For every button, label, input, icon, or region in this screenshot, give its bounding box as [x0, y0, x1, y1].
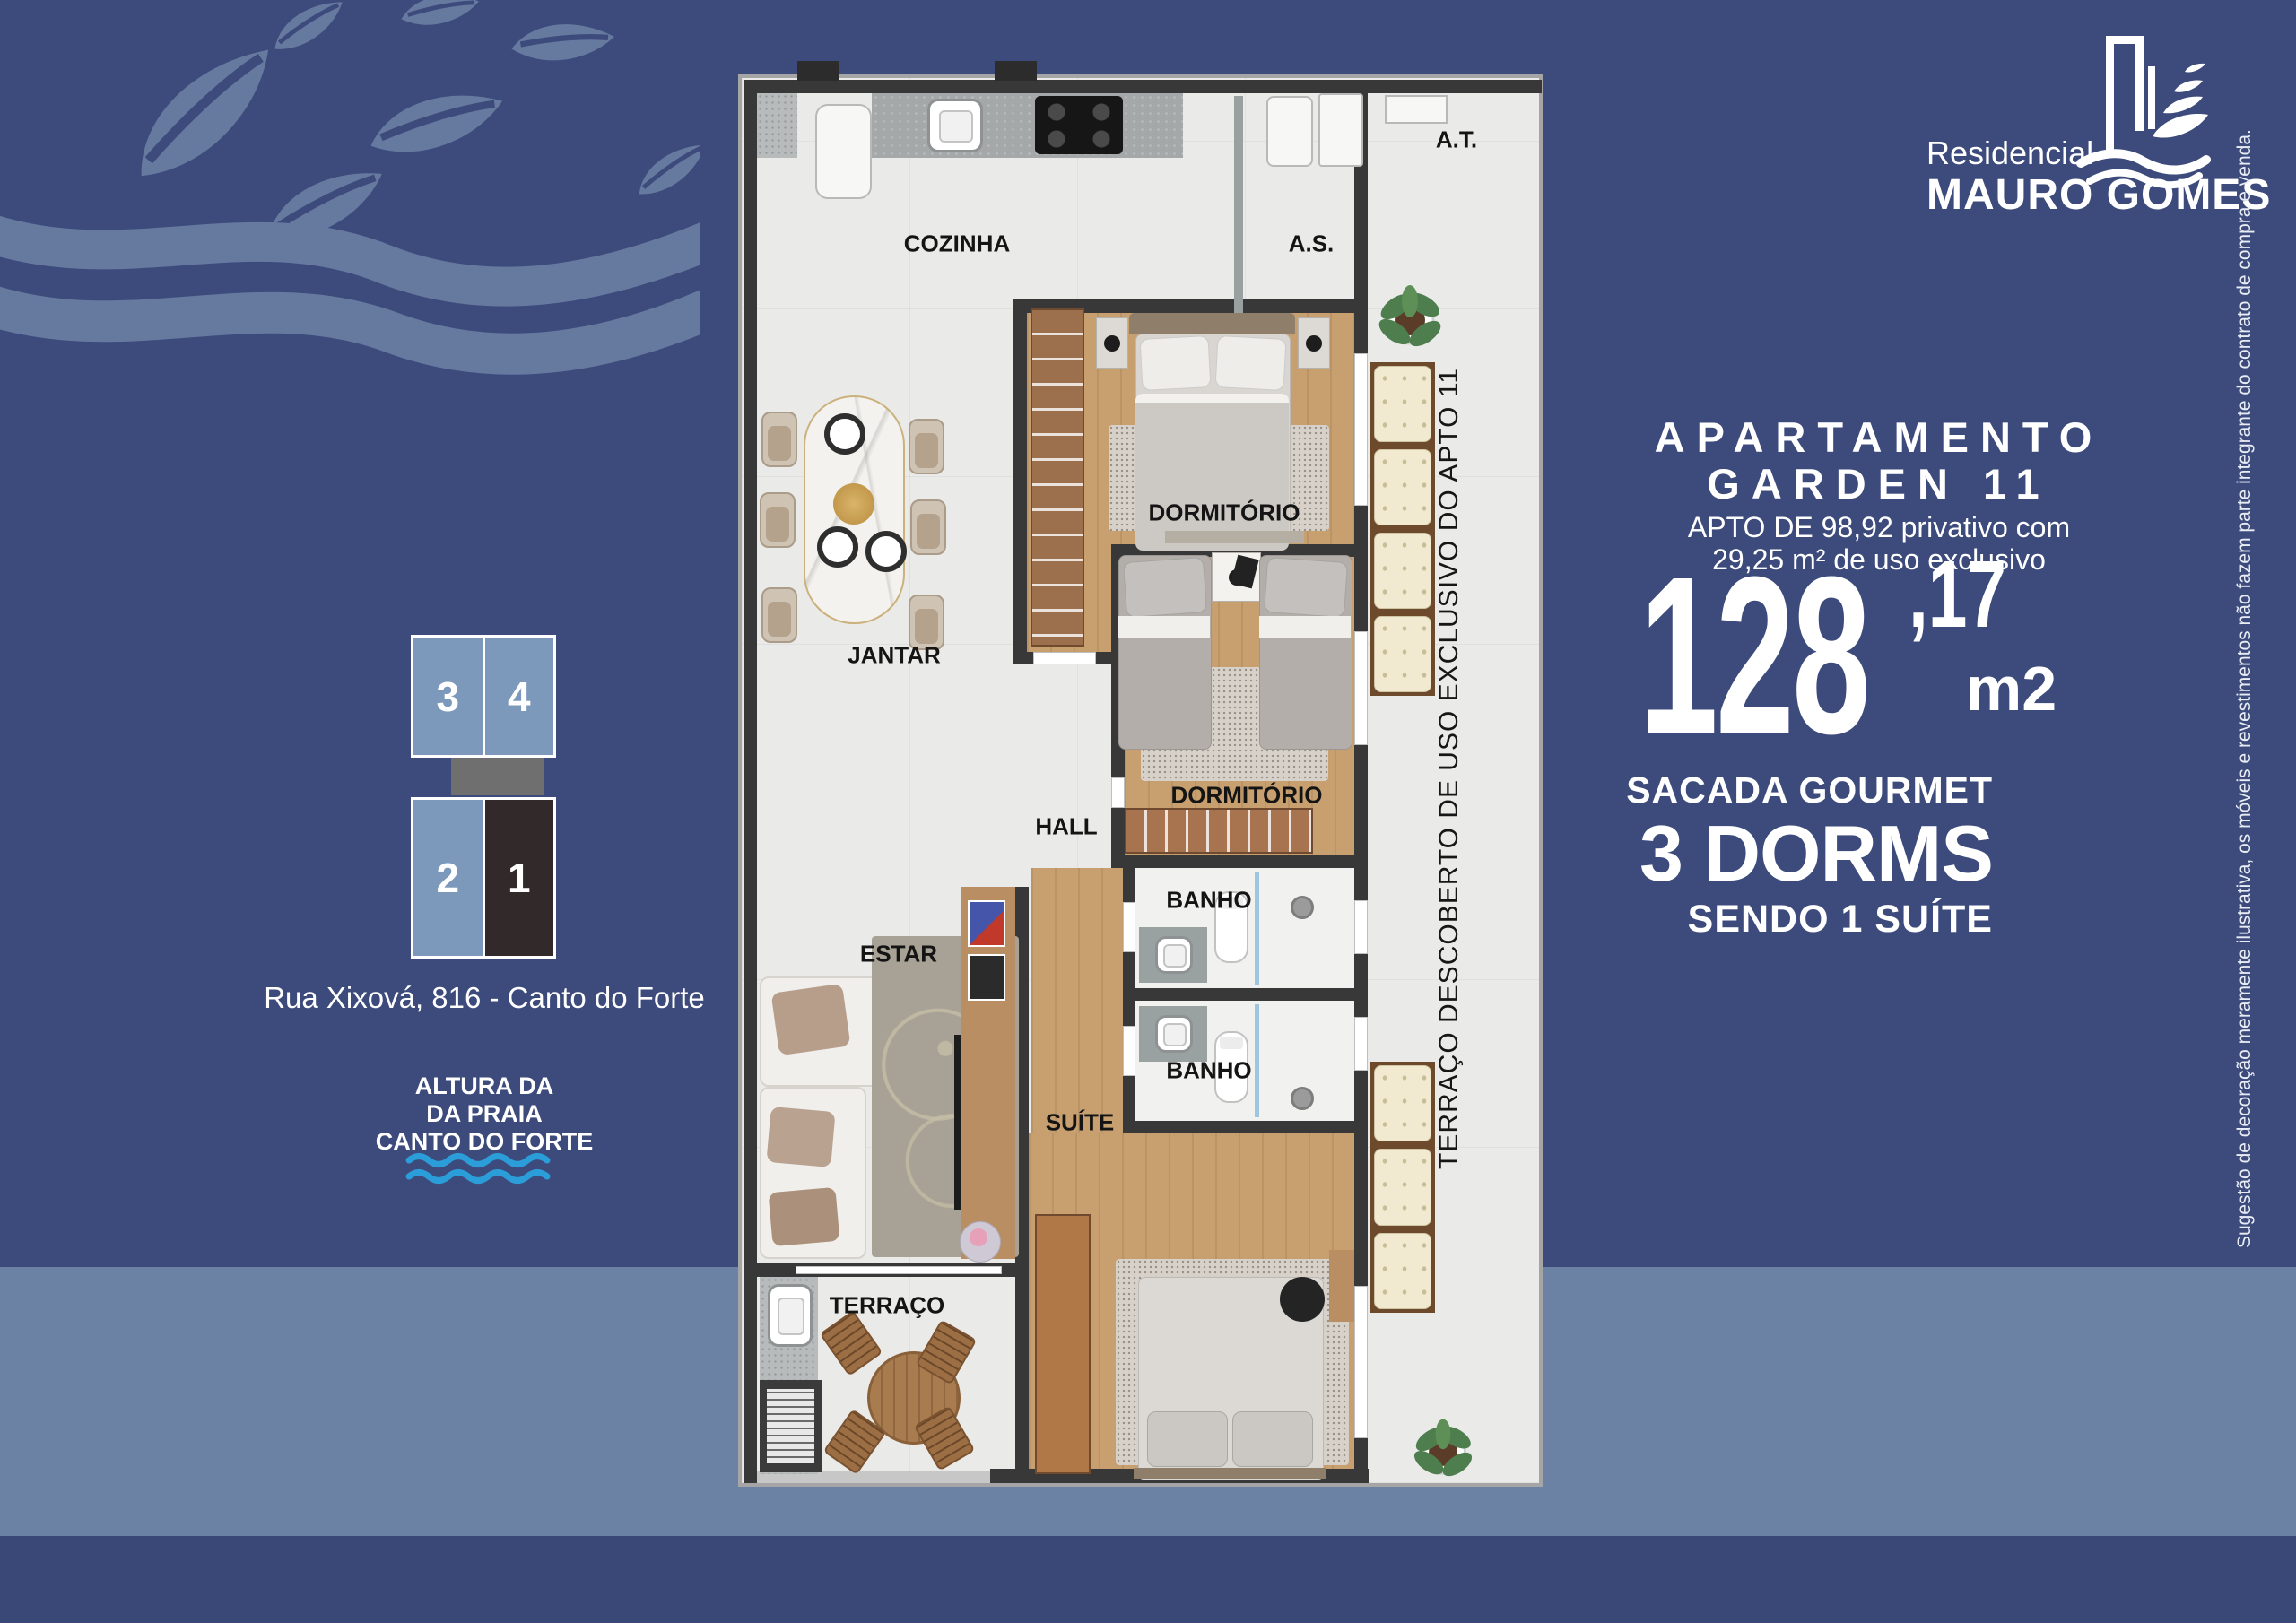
dining-chair-1 — [761, 412, 797, 467]
area-decimal: ,17 — [1909, 554, 2006, 635]
apartment-title-line2: GARDEN 11 — [1605, 461, 2152, 508]
side-table-dessert — [970, 1228, 987, 1246]
unit-3: 3 — [413, 638, 483, 755]
bench-cushion — [1374, 366, 1431, 442]
brochure-page: { "brand": { "prefix": "Residencial", "n… — [0, 0, 2296, 1623]
door-bedroom2 — [1111, 777, 1125, 808]
bench-cushion — [1374, 1233, 1431, 1309]
bedroom2-pillow-right — [1264, 557, 1348, 618]
feature-sacada-gourmet: SACADA GOURMET — [1578, 769, 1993, 811]
bedroom1-nightstand-left — [1096, 317, 1128, 369]
wall-bedroom2-left-b — [1111, 808, 1125, 868]
area-unit: m2 — [1966, 653, 2057, 725]
door-bedroom1 — [1033, 652, 1096, 664]
suite-pillow-right — [1232, 1411, 1313, 1467]
sliding-door-estar — [796, 1266, 1002, 1274]
dining-centerpiece — [833, 483, 874, 525]
label-dormitorio-1: DORMITÓRIO — [1149, 499, 1300, 527]
landmark-text: ALTURA DA DA PRAIA CANTO DO FORTE — [305, 1072, 664, 1156]
brand-name: MAURO GOMES — [1926, 170, 2271, 220]
water-heater — [1318, 93, 1363, 167]
sofa-pillow-1 — [771, 984, 851, 1055]
refrigerator — [815, 104, 872, 199]
bench-cushion — [1374, 1149, 1431, 1225]
terrace-chair-nw — [820, 1310, 883, 1376]
bench-cushion — [1374, 533, 1431, 609]
bathroom2-shower-glass — [1255, 1004, 1259, 1117]
leaf-wave-watermark — [0, 0, 700, 421]
bathroom1-shower-glass — [1255, 872, 1259, 985]
wall-between-bathrooms — [1135, 988, 1354, 1001]
wall-stub-2 — [995, 61, 1037, 81]
wall-left — [744, 80, 757, 1483]
bedroom2-wardrobe — [1125, 808, 1313, 854]
bedroom1-headboard — [1129, 313, 1295, 334]
footer-band — [0, 1536, 2296, 1623]
feature-suite: SENDO 1 SUÍTE — [1578, 897, 1993, 942]
bathroom2-sink — [1155, 1015, 1193, 1053]
tv-panel — [954, 1035, 961, 1210]
label-cozinha: COZINHA — [904, 230, 1010, 258]
legal-disclaimer: Sugestão de decoração meramente ilustrat… — [2234, 199, 2259, 1248]
bedroom1-wardrobe — [1031, 308, 1084, 647]
window-bedroom1 — [1354, 353, 1368, 506]
suite-desk — [1329, 1250, 1354, 1322]
brand-prefix: Residencial — [1926, 135, 2093, 172]
bathroom2-shower-head — [1291, 1087, 1314, 1110]
area-value: 128 — [1639, 563, 1868, 747]
beach-waves-icon — [405, 1151, 567, 1187]
bedroom1-nightstand-right — [1298, 317, 1330, 369]
suite-pillow-left — [1147, 1411, 1228, 1467]
console-art-print — [968, 954, 1005, 1001]
terrace-bench-top — [1370, 362, 1435, 696]
terrace-sink — [768, 1284, 813, 1347]
sofa-pillow-3 — [769, 1187, 840, 1246]
label-dormitorio-2: DORMITÓRIO — [1171, 782, 1323, 810]
unit-2: 2 — [413, 800, 483, 956]
washing-machine — [1266, 96, 1313, 167]
feature-dorms: 3 DORMS — [1578, 811, 1993, 897]
bathroom1-sink — [1155, 936, 1193, 974]
unit-locator-bottom-block: 2 1 — [411, 797, 556, 959]
door-bathroom1 — [1123, 902, 1135, 952]
bench-cushion — [1374, 1065, 1431, 1141]
dining-chair-4 — [909, 419, 944, 474]
landmark-line2: DA PRAIA — [305, 1100, 664, 1128]
label-banho-2: BANHO — [1166, 1057, 1251, 1085]
wall-bedroom2-bottom — [1125, 855, 1354, 868]
suite-wardrobe — [1035, 1214, 1091, 1474]
bedroom2-sheet-right — [1259, 616, 1351, 638]
at-box — [1385, 95, 1448, 124]
suite-headboard — [1134, 1468, 1326, 1479]
unit-locator-connector — [451, 758, 544, 795]
bench-cushion — [1374, 449, 1431, 525]
label-suite: SUÍTE — [1046, 1109, 1115, 1137]
potted-plant-top — [1370, 280, 1450, 360]
floor-plan: COZINHA A.S. A.T. DORMITÓRIO JANTAR DORM… — [738, 74, 1543, 1487]
label-hall: HALL — [1035, 813, 1097, 841]
dining-plate-1 — [824, 413, 865, 455]
bedroom1-duvet — [1135, 394, 1289, 551]
label-estar: ESTAR — [860, 941, 937, 968]
wall-bedroom1-left — [1013, 299, 1027, 652]
bedroom1-pillow-left — [1140, 335, 1212, 391]
label-at: A.T. — [1436, 126, 1477, 154]
door-bathroom2 — [1123, 1026, 1135, 1076]
dining-plate-3 — [865, 531, 907, 572]
potted-plant-bottom — [1405, 1414, 1481, 1489]
terrace-grill-grate — [767, 1389, 814, 1463]
console-magazine — [968, 900, 1005, 947]
bench-cushion — [1374, 616, 1431, 692]
unit-locator-top-block: 3 4 — [411, 635, 556, 758]
wall-top — [746, 80, 1542, 93]
terrace-bench-bottom — [1370, 1062, 1435, 1313]
terrace-exclusive-note: TERRAÇO DESCOBERTO DE USO EXCLUSIVO DO A… — [1434, 398, 1465, 1169]
wall-terrace-separation — [1354, 93, 1368, 1474]
wall-bathroom2-bottom — [1135, 1121, 1354, 1133]
bedroom2-pillow-left — [1123, 557, 1207, 618]
address: Rua Xixová, 816 - Canto do Forte — [215, 981, 753, 1015]
suite-desk-chair — [1280, 1277, 1325, 1322]
apartment-title-line1: APARTAMENTO — [1605, 414, 2152, 461]
kitchen-sink — [927, 99, 983, 152]
suite-corridor-floor — [1031, 868, 1135, 1133]
kitchen-counter — [872, 93, 1183, 158]
bedroom1-bench — [1165, 531, 1304, 543]
dining-chair-5 — [910, 499, 946, 555]
window-suite — [1354, 1286, 1368, 1438]
label-banho-1: BANHO — [1166, 887, 1251, 915]
wall-hall-stub-a — [1013, 652, 1033, 664]
label-jantar: JANTAR — [848, 642, 941, 670]
feature-list: SACADA GOURMET 3 DORMS SENDO 1 SUÍTE — [1578, 769, 1993, 942]
bathroom1-shower-head — [1291, 896, 1314, 919]
kitchen-corner-counter — [757, 93, 797, 158]
wall-stub-1 — [797, 61, 839, 81]
label-as: A.S. — [1289, 230, 1335, 258]
bedroom1-pillow-right — [1215, 335, 1287, 391]
dining-plate-2 — [817, 526, 858, 568]
label-terraco: TERRAÇO — [830, 1292, 945, 1320]
sofa-pillow-2 — [766, 1107, 835, 1167]
unit-1-highlighted: 1 — [485, 800, 554, 956]
dining-chair-2 — [760, 492, 796, 548]
landmark-line1: ALTURA DA — [305, 1072, 664, 1100]
apartment-title: APARTAMENTO GARDEN 11 — [1605, 414, 2152, 508]
cooktop — [1035, 96, 1123, 154]
window-bathroom2 — [1354, 1017, 1368, 1071]
window-bathroom1 — [1354, 900, 1368, 954]
unit-4: 4 — [485, 638, 554, 755]
window-bedroom2 — [1354, 631, 1368, 745]
bedroom2-sheet-left — [1118, 616, 1210, 638]
dining-chair-3 — [761, 587, 797, 643]
